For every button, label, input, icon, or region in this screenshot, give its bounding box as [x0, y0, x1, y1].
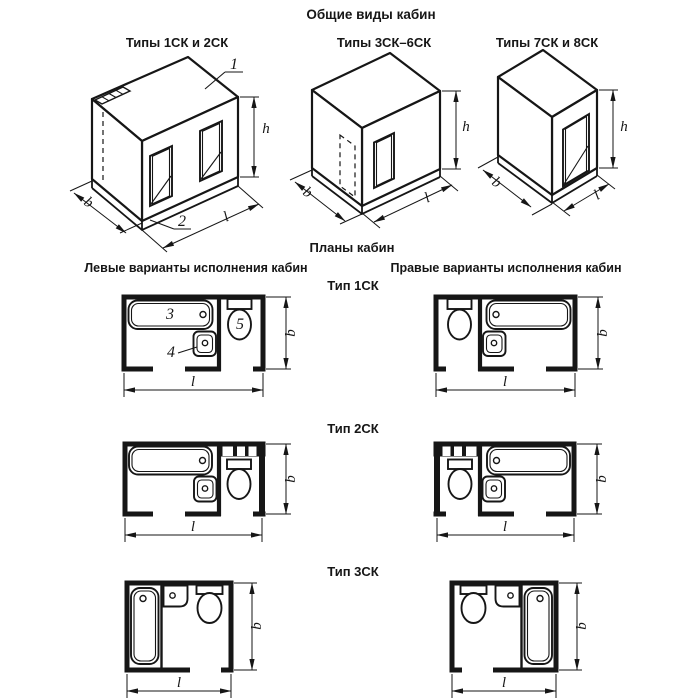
bathtub	[525, 588, 553, 664]
dim-l-label: l	[177, 675, 181, 691]
dim-h: h	[599, 90, 628, 168]
toilet-tank	[227, 460, 251, 470]
door-left	[150, 146, 172, 206]
view2-caption: Типы 3СК–6СК	[337, 35, 431, 50]
dim-b-label: b	[249, 622, 265, 630]
callout-bathtub: 3	[165, 306, 174, 323]
dim-b-label: b	[489, 174, 505, 192]
type-1sk-label: Тип 1СК	[327, 278, 379, 293]
dim-l-label: l	[591, 188, 603, 204]
dim-l: l	[452, 674, 556, 698]
view3-caption: Типы 7СК и 8СК	[496, 35, 598, 50]
callout-cabin-top: 1	[205, 56, 243, 89]
dim-l-label: l	[503, 374, 507, 390]
toilet-bowl	[198, 593, 222, 623]
plans-title: Планы кабин	[309, 240, 394, 255]
callout-toilet: 5	[236, 316, 244, 333]
type-2sk-label: Тип 2СК	[327, 421, 379, 436]
toilet-tank	[448, 460, 472, 470]
dim-b-label: b	[283, 475, 299, 483]
dim-b-label: b	[283, 329, 299, 337]
toilet	[448, 299, 472, 340]
plan-3sk-left: b l	[125, 581, 266, 699]
plan-3sk-right: b l	[450, 581, 591, 699]
callout-1-label: 1	[230, 56, 238, 73]
dim-l: l	[436, 373, 575, 397]
dim-l: l	[124, 373, 263, 397]
drawing-canvas: Общие виды кабин Типы 1СК и 2СК Типы 3СК…	[0, 0, 700, 700]
dim-l: l	[125, 518, 262, 542]
toilet-bowl	[228, 469, 251, 499]
dim-l-label: l	[502, 675, 506, 691]
vent-block	[217, 442, 266, 457]
door-right	[200, 121, 222, 181]
toilet-tank	[228, 299, 252, 309]
dim-b: b	[234, 583, 265, 670]
plan-1sk-left: 3 4 5 b l	[122, 295, 300, 398]
toilet-tank	[448, 299, 472, 309]
isometric-view-2: h b l	[290, 53, 470, 228]
dim-h: h	[442, 91, 470, 169]
door-front	[374, 133, 394, 188]
callout-4-label: 4	[167, 344, 175, 361]
vent-block	[434, 442, 483, 457]
plan-2sk-left: b l	[123, 442, 300, 543]
dim-l-label: l	[191, 374, 195, 390]
view1-caption: Типы 1СК и 2СК	[126, 35, 228, 50]
dim-b: b	[266, 444, 299, 514]
bathtub	[487, 447, 570, 475]
dim-b-label: b	[594, 475, 610, 483]
bathtub	[487, 301, 571, 330]
bathtub	[131, 588, 159, 664]
washbasin	[483, 332, 506, 357]
callout-washbasin: 4	[167, 344, 197, 361]
plan-2sk-right: b l	[434, 442, 611, 543]
isometric-view-1: h b l 1 2	[70, 56, 270, 252]
type-3sk-label: Тип 3СК	[327, 564, 379, 579]
bathtub	[129, 447, 212, 475]
callout-2-label: 2	[178, 213, 186, 230]
dim-h: h	[240, 97, 270, 177]
gost-cabin-drawing: Общие виды кабин Типы 1СК и 2СК Типы 3СК…	[0, 0, 700, 700]
washbasin	[164, 586, 188, 607]
toilet	[448, 460, 472, 500]
dim-h-label: h	[262, 121, 270, 137]
dim-b: b	[266, 297, 299, 369]
plan-1sk-right: b l	[434, 295, 612, 398]
dim-l: l	[437, 518, 574, 542]
dim-h-label: h	[462, 119, 470, 135]
dim-h-label: h	[620, 119, 628, 135]
right-variants-heading: Правые варианты исполнения кабин	[390, 261, 621, 275]
dim-b-label: b	[595, 329, 611, 337]
washbasin	[483, 477, 506, 502]
washbasin	[194, 477, 217, 502]
dim-l: l	[127, 674, 231, 698]
toilet	[197, 586, 223, 624]
dim-l-label: l	[503, 519, 507, 535]
dim-b: b	[559, 583, 590, 670]
toilet	[461, 586, 487, 624]
toilet	[227, 460, 251, 500]
toilet-bowl	[448, 310, 471, 340]
washbasin	[496, 586, 520, 607]
washbasin	[194, 332, 217, 357]
dim-l-label: l	[191, 519, 195, 535]
dim-b-label: b	[574, 622, 590, 630]
dim-b-label: b	[300, 184, 316, 202]
dim-b: b	[578, 297, 611, 369]
dim-b: b	[577, 444, 610, 514]
toilet-bowl	[449, 469, 472, 499]
left-variants-heading: Левые варианты исполнения кабин	[84, 261, 307, 275]
isometric-view-3: h b l	[478, 50, 628, 216]
page-title: Общие виды кабин	[306, 7, 435, 22]
toilet-bowl	[462, 593, 486, 623]
